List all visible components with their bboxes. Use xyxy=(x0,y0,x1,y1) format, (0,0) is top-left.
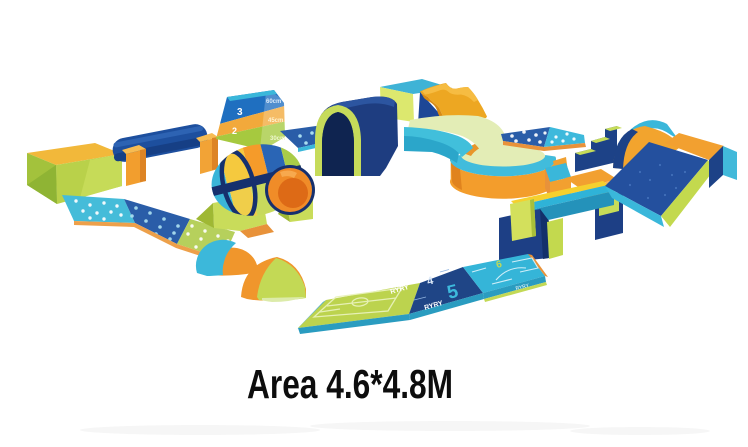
svg-text:2: 2 xyxy=(232,126,237,136)
svg-text:60cm: 60cm xyxy=(266,99,281,105)
svg-text:3: 3 xyxy=(237,107,243,118)
svg-text:Area 4.6*4.8M: Area 4.6*4.8M xyxy=(247,361,453,407)
svg-text:45cm: 45cm xyxy=(268,118,283,124)
svg-text:30cm: 30cm xyxy=(270,136,285,142)
